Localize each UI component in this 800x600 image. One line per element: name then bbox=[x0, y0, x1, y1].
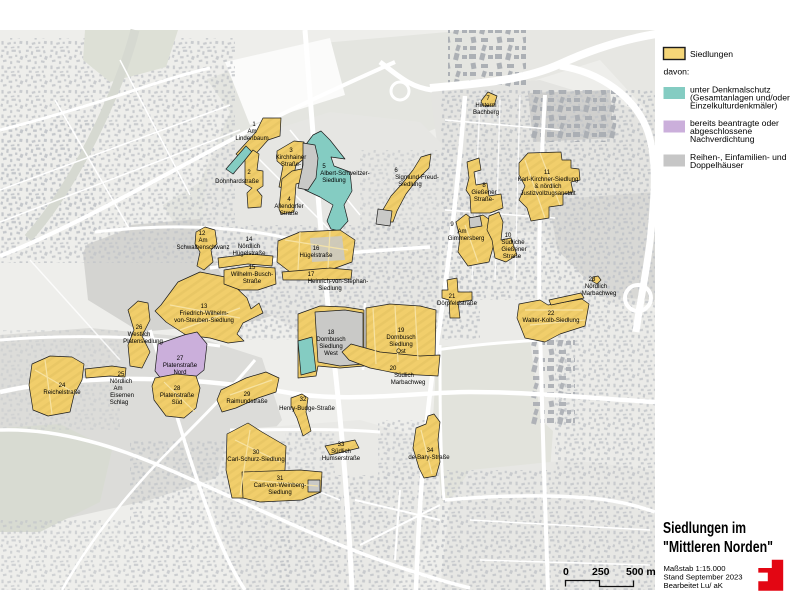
svg-text:davon:: davon: bbox=[664, 67, 690, 77]
svg-text:0: 0 bbox=[563, 566, 569, 578]
svg-text:Bearbeitet Lu/ aK: Bearbeitet Lu/ aK bbox=[664, 581, 724, 590]
svg-text:Siedlungen: Siedlungen bbox=[690, 49, 733, 59]
svg-text:Siedlungen im: Siedlungen im bbox=[663, 520, 746, 537]
svg-text:250: 250 bbox=[592, 566, 610, 578]
svg-text:500 m: 500 m bbox=[626, 566, 656, 578]
svg-text:"Mittleren Norden": "Mittleren Norden" bbox=[663, 539, 773, 556]
